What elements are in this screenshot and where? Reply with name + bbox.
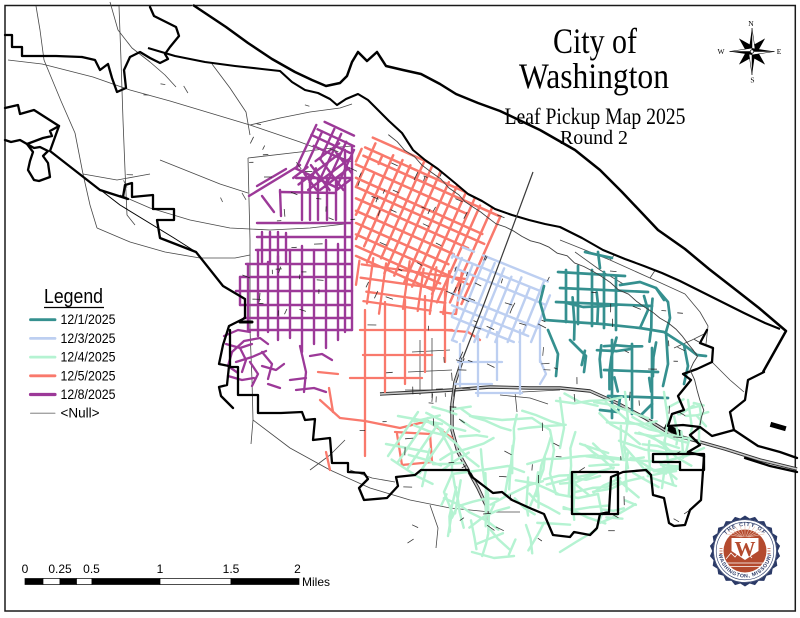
- svg-text:<Null>: <Null>: [61, 406, 100, 421]
- svg-text:Miles: Miles: [302, 575, 330, 589]
- svg-text:2: 2: [294, 562, 301, 576]
- svg-text:0.25: 0.25: [48, 562, 72, 576]
- svg-text:Legend: Legend: [44, 286, 103, 308]
- svg-text:12/8/2025: 12/8/2025: [61, 387, 116, 402]
- svg-text:W: W: [717, 47, 725, 56]
- svg-text:12/5/2025: 12/5/2025: [61, 368, 116, 383]
- svg-text:Leaf Pickup Map 2025: Leaf Pickup Map 2025: [505, 104, 686, 129]
- svg-text:N: N: [748, 19, 754, 28]
- svg-text:0: 0: [22, 562, 29, 576]
- svg-text:City of: City of: [553, 21, 637, 61]
- svg-text:S: S: [750, 76, 754, 85]
- svg-text:Washington: Washington: [519, 56, 669, 96]
- svg-text:12/3/2025: 12/3/2025: [61, 331, 116, 346]
- svg-text:0.5: 0.5: [83, 562, 100, 576]
- svg-text:W: W: [735, 537, 756, 561]
- svg-text:Round 2: Round 2: [560, 127, 628, 149]
- svg-text:1: 1: [157, 562, 164, 576]
- svg-text:12/4/2025: 12/4/2025: [61, 350, 116, 365]
- svg-text:12/1/2025: 12/1/2025: [61, 312, 116, 327]
- svg-text:1.5: 1.5: [223, 562, 240, 576]
- svg-text:E: E: [777, 47, 782, 56]
